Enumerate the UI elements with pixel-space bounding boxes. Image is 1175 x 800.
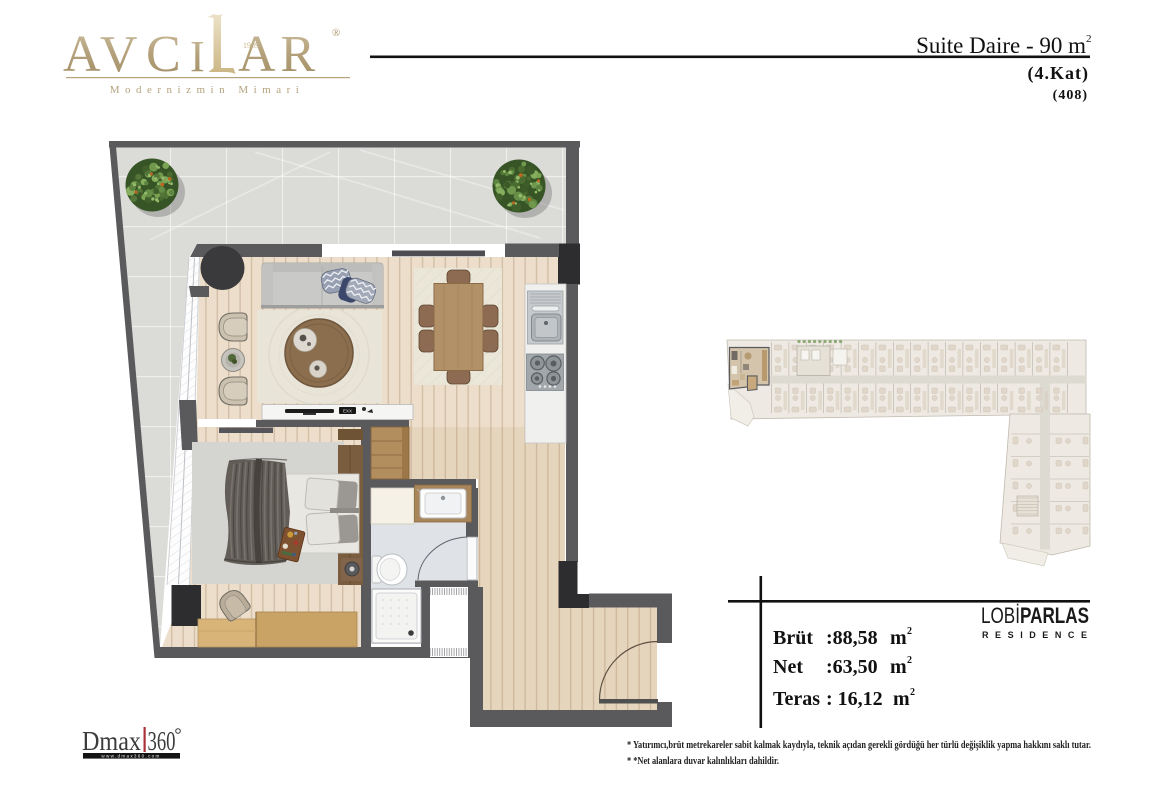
svg-text:Net: Net — [773, 656, 803, 678]
svg-text:m: m — [890, 627, 907, 649]
svg-text:AR: AR — [238, 26, 320, 83]
svg-text:* Yatırımcı,brüt metrekareler: * Yatırımcı,brüt metrekareler sabit kalm… — [627, 740, 1091, 751]
svg-text:2: 2 — [910, 687, 915, 698]
svg-text:2: 2 — [907, 626, 912, 637]
svg-text:360: 360 — [148, 726, 176, 756]
svg-text:(4.Kat): (4.Kat) — [1028, 63, 1089, 84]
svg-text:Teras: Teras — [773, 688, 820, 710]
svg-text:Suite Daire - 90 m: Suite Daire - 90 m — [916, 33, 1086, 58]
svg-text::88,58: :88,58 — [826, 627, 878, 649]
svg-text:www.dmax360.com: www.dmax360.com — [101, 754, 160, 759]
svg-text:Brüt: Brüt — [773, 627, 813, 649]
svg-text:m: m — [890, 656, 907, 678]
svg-text:* *Net alanlara duvar kalınlı: * *Net alanlara duvar kalınlıkları dahil… — [627, 756, 779, 767]
svg-text:Modernizmin Mimari: Modernizmin Mimari — [110, 84, 305, 96]
svg-text:m: m — [893, 688, 910, 710]
svg-text:: 16,12: : 16,12 — [826, 688, 883, 710]
svg-text:C: C — [146, 26, 181, 83]
svg-text:2: 2 — [1086, 33, 1092, 45]
svg-text:®: ® — [332, 27, 340, 39]
svg-text:RESIDENCE: RESIDENCE — [982, 630, 1087, 640]
svg-text::63,50: :63,50 — [826, 656, 878, 678]
svg-text:I: I — [190, 32, 205, 81]
svg-text:(408): (408) — [1053, 88, 1088, 103]
svg-text:LOBİPARLAS: LOBİPARLAS — [981, 603, 1089, 628]
svg-text:Dmax: Dmax — [82, 726, 141, 756]
svg-text:EXX: EXX — [343, 409, 352, 414]
svg-text:AV: AV — [63, 26, 143, 83]
svg-text:2: 2 — [907, 655, 912, 666]
